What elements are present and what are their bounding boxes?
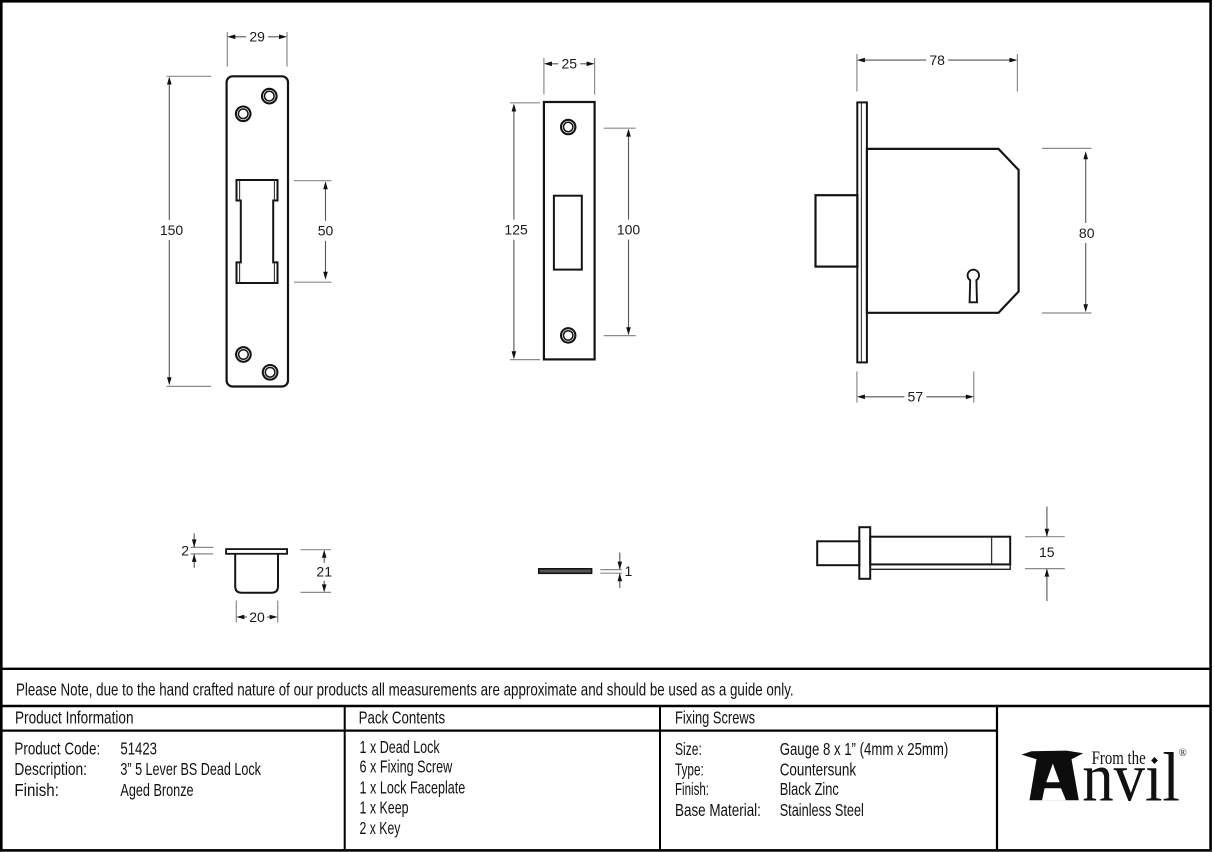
- svg-text:2 x Key: 2 x Key: [360, 818, 401, 838]
- svg-text:6 x Fixing Screw: 6 x Fixing Screw: [360, 757, 453, 777]
- svg-text:2: 2: [181, 543, 189, 559]
- svg-text:15: 15: [1039, 544, 1055, 560]
- svg-text:51423: 51423: [120, 738, 157, 758]
- svg-text:80: 80: [1079, 225, 1095, 241]
- svg-text:Please Note, due to the hand c: Please Note, due to the hand crafted nat…: [16, 680, 794, 700]
- svg-text:1 x Dead Lock: 1 x Dead Lock: [360, 737, 440, 757]
- svg-text:®: ®: [1179, 748, 1187, 759]
- svg-text:29: 29: [249, 29, 265, 45]
- svg-text:57: 57: [908, 389, 924, 405]
- svg-text:Description:: Description:: [14, 759, 87, 779]
- svg-text:Fixing Screws: Fixing Screws: [675, 707, 755, 727]
- svg-text:20: 20: [249, 609, 265, 625]
- svg-text:Finish:: Finish:: [675, 779, 709, 799]
- svg-text:1 x Keep: 1 x Keep: [360, 798, 409, 818]
- svg-text:125: 125: [504, 222, 528, 238]
- svg-text:78: 78: [929, 52, 945, 68]
- svg-text:Stainless Steel: Stainless Steel: [780, 800, 864, 820]
- svg-text:21: 21: [316, 564, 332, 580]
- svg-text:Gauge 8 x 1” (4mm x 25mm): Gauge 8 x 1” (4mm x 25mm): [780, 739, 949, 759]
- svg-text:1: 1: [625, 563, 633, 579]
- svg-text:Product Code:: Product Code:: [14, 738, 100, 758]
- svg-text:Base Material:: Base Material:: [675, 800, 761, 820]
- svg-text:Black Zinc: Black Zinc: [780, 779, 839, 799]
- svg-text:Product Information: Product Information: [15, 707, 134, 727]
- svg-text:1 x Lock Faceplate: 1 x Lock Faceplate: [360, 778, 466, 798]
- svg-text:Finish:: Finish:: [14, 780, 59, 800]
- svg-text:50: 50: [318, 223, 334, 239]
- svg-text:25: 25: [561, 56, 577, 72]
- svg-text:Pack Contents: Pack Contents: [359, 707, 446, 727]
- svg-text:Size:: Size:: [675, 739, 702, 759]
- svg-text:3” 5 Lever BS Dead Lock: 3” 5 Lever BS Dead Lock: [120, 759, 261, 779]
- svg-text:Aged Bronze: Aged Bronze: [120, 780, 193, 800]
- svg-text:From the: From the: [1092, 748, 1146, 769]
- svg-text:Type:: Type:: [675, 759, 704, 779]
- svg-text:Countersunk: Countersunk: [780, 759, 857, 779]
- svg-text:100: 100: [617, 222, 641, 238]
- svg-text:150: 150: [160, 222, 184, 238]
